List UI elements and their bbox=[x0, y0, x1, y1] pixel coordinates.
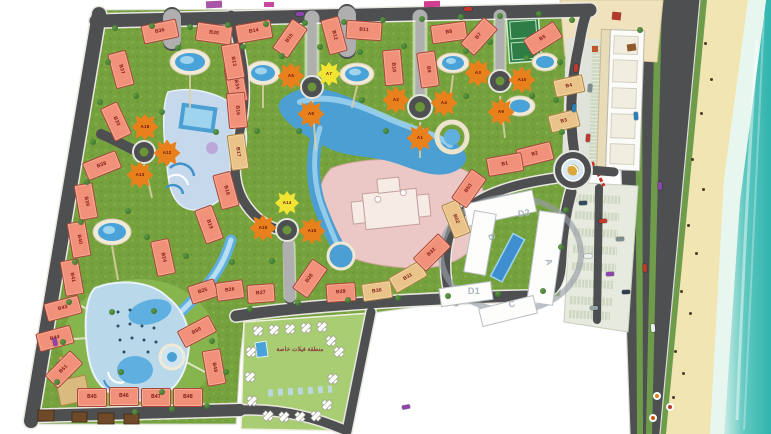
building-label: B28 bbox=[305, 273, 315, 284]
building-label: A12 bbox=[163, 151, 172, 156]
tree-icon bbox=[240, 44, 246, 50]
building-label: B40 bbox=[76, 234, 83, 245]
building-A14: A14 bbox=[275, 191, 299, 215]
tree-icon bbox=[90, 139, 96, 145]
building-B: B bbox=[480, 221, 503, 254]
building-B31: B31 bbox=[388, 260, 428, 294]
car-icon bbox=[590, 306, 598, 310]
building-label: B43 bbox=[58, 304, 69, 311]
tree-icon bbox=[132, 409, 138, 415]
building-label: A10 bbox=[518, 78, 527, 83]
car-icon bbox=[579, 201, 587, 205]
tree-icon bbox=[445, 293, 451, 299]
tree-icon bbox=[536, 11, 542, 17]
tree-icon bbox=[144, 234, 150, 240]
building-B32: B32 bbox=[413, 233, 452, 272]
building-label: B13 bbox=[230, 56, 237, 67]
building-markers-layer: B36B35B37B34B33B14B15B13B16B12B11B10B9B8… bbox=[0, 0, 771, 434]
building-label: B29 bbox=[336, 289, 346, 295]
car-icon bbox=[658, 182, 663, 190]
building-C: C bbox=[496, 294, 528, 314]
building-label: B32 bbox=[427, 247, 437, 257]
car-icon bbox=[52, 338, 57, 347]
beach-palm-icon bbox=[680, 290, 683, 293]
car-icon bbox=[584, 254, 592, 258]
building-B39: B39 bbox=[74, 182, 99, 221]
car-icon bbox=[586, 134, 591, 142]
building-label: B47 bbox=[151, 395, 161, 400]
building-B49: B49 bbox=[202, 348, 227, 387]
car-icon bbox=[296, 12, 304, 16]
villa bbox=[253, 326, 263, 336]
beach-palm-icon bbox=[695, 252, 698, 255]
building-B38: B38 bbox=[82, 149, 122, 180]
building-label: B16 bbox=[234, 105, 240, 115]
building-B10: B10 bbox=[382, 48, 404, 86]
car-icon bbox=[588, 84, 593, 92]
tree-icon bbox=[569, 17, 575, 23]
tree-icon bbox=[169, 406, 175, 412]
beach-palm-icon bbox=[710, 78, 713, 81]
tree-icon bbox=[341, 19, 347, 25]
tree-icon bbox=[109, 309, 115, 315]
tree-icon bbox=[112, 25, 118, 31]
building-label: B26 bbox=[225, 287, 235, 293]
tree-icon bbox=[213, 129, 219, 135]
tree-icon bbox=[458, 14, 464, 20]
tree-icon bbox=[159, 389, 165, 395]
tree-icon bbox=[133, 93, 139, 99]
building-A13: A13 bbox=[127, 162, 154, 189]
beach-palm-icon bbox=[704, 42, 707, 45]
tree-icon bbox=[72, 259, 78, 265]
beach-palm-icon bbox=[691, 158, 694, 161]
tree-icon bbox=[225, 22, 231, 28]
building-B19: B19 bbox=[194, 204, 224, 244]
building-label: B35 bbox=[209, 30, 219, 36]
building-label: B4 bbox=[565, 83, 573, 89]
tree-icon bbox=[463, 48, 469, 54]
tree-icon bbox=[187, 24, 193, 30]
building-A1: A1 bbox=[407, 125, 434, 152]
resort-master-plan-map: B36B35B37B34B33B14B15B13B16B12B11B10B9B8… bbox=[0, 0, 771, 434]
building-A7: A7 bbox=[317, 62, 341, 86]
tree-icon bbox=[223, 369, 229, 375]
tree-icon bbox=[540, 288, 546, 294]
tree-icon bbox=[395, 295, 401, 301]
building-A5: A5 bbox=[278, 63, 305, 90]
building-B47: B47 bbox=[141, 388, 171, 407]
villa bbox=[263, 411, 273, 421]
tree-icon bbox=[302, 20, 308, 26]
tree-icon bbox=[175, 45, 181, 51]
villa bbox=[317, 322, 327, 332]
tree-icon bbox=[183, 253, 189, 259]
building-label: A15 bbox=[308, 229, 317, 234]
building-B4: B4 bbox=[552, 74, 585, 98]
tree-icon bbox=[254, 128, 260, 134]
car-icon bbox=[616, 237, 624, 241]
beach-palm-icon bbox=[687, 224, 690, 227]
building-B5: B5 bbox=[523, 20, 564, 55]
building-label: B bbox=[487, 232, 498, 242]
beach-umbrella-icon bbox=[653, 392, 661, 400]
building-label: B7 bbox=[475, 32, 483, 40]
building-B34: B34 bbox=[224, 65, 249, 104]
tree-icon bbox=[401, 43, 407, 49]
tree-icon bbox=[524, 55, 530, 61]
building-label: B14 bbox=[249, 28, 260, 35]
car-icon bbox=[402, 404, 411, 409]
building-A8: A8 bbox=[298, 101, 325, 128]
building-A2: A2 bbox=[383, 87, 410, 114]
building-B17: B17 bbox=[227, 133, 250, 171]
building-label: B15 bbox=[285, 33, 295, 44]
building-A12: A12 bbox=[154, 140, 181, 167]
tree-icon bbox=[269, 258, 275, 264]
building-label: A8 bbox=[308, 112, 314, 117]
building-A9: A9 bbox=[488, 99, 515, 126]
villa bbox=[328, 374, 338, 384]
villa bbox=[311, 411, 321, 421]
building-B36: B36 bbox=[140, 18, 179, 44]
building-D1: D1 bbox=[459, 284, 489, 298]
car-icon bbox=[606, 272, 614, 276]
building-B46: B46 bbox=[109, 387, 139, 406]
building-label: B17 bbox=[235, 147, 241, 157]
building-A18: A18 bbox=[132, 114, 159, 141]
tree-icon bbox=[209, 338, 215, 344]
tree-icon bbox=[558, 244, 564, 250]
tree-icon bbox=[419, 16, 425, 22]
tree-icon bbox=[54, 379, 60, 385]
building-label: A14 bbox=[283, 201, 292, 206]
tree-icon bbox=[487, 39, 493, 45]
beach-palm-icon bbox=[700, 112, 703, 115]
building-label: B31 bbox=[403, 272, 414, 281]
car-icon bbox=[643, 264, 648, 272]
tree-icon bbox=[357, 49, 363, 55]
building-label: B52 bbox=[452, 214, 460, 225]
building-B48: B48 bbox=[173, 388, 203, 407]
building-label: C bbox=[508, 299, 517, 309]
villa bbox=[285, 324, 295, 334]
building-label: B5 bbox=[539, 34, 547, 42]
building-label: B34 bbox=[233, 79, 240, 90]
building-B37: B37 bbox=[107, 49, 135, 89]
car-icon bbox=[574, 64, 579, 72]
tree-icon bbox=[263, 21, 269, 27]
tree-icon bbox=[563, 207, 569, 213]
tree-icon bbox=[345, 297, 351, 303]
tree-icon bbox=[84, 179, 90, 185]
tree-icon bbox=[637, 27, 643, 33]
tree-icon bbox=[279, 53, 285, 59]
building-label: B50 bbox=[192, 326, 203, 335]
building-B43: B43 bbox=[43, 294, 83, 322]
villa bbox=[247, 396, 257, 406]
building-B26: B26 bbox=[215, 279, 245, 302]
beach-palm-icon bbox=[672, 396, 675, 399]
tree-icon bbox=[247, 306, 253, 312]
building-B30: B30 bbox=[361, 280, 393, 302]
tree-icon bbox=[359, 97, 365, 103]
building-B28: B28 bbox=[292, 258, 328, 298]
building-label: B53 bbox=[464, 183, 474, 194]
building-label: B46 bbox=[119, 394, 129, 399]
tree-icon bbox=[383, 128, 389, 134]
tree-icon bbox=[529, 93, 535, 99]
building-B29: B29 bbox=[325, 281, 356, 302]
building-B8: B8 bbox=[430, 20, 468, 44]
car-icon bbox=[572, 104, 577, 112]
tree-icon bbox=[559, 129, 565, 135]
building-label: A18 bbox=[141, 125, 150, 130]
building-label: B10 bbox=[390, 62, 396, 72]
building-B9: B9 bbox=[416, 50, 440, 88]
tree-icon bbox=[149, 23, 155, 29]
building-B51: B51 bbox=[45, 350, 84, 389]
building-label: D2 bbox=[517, 207, 531, 218]
building-label: B9 bbox=[425, 65, 431, 72]
car-icon bbox=[464, 7, 472, 11]
tree-icon bbox=[495, 291, 501, 297]
tree-icon bbox=[118, 369, 124, 375]
building-label: B38 bbox=[97, 161, 108, 169]
beach-palm-icon bbox=[674, 350, 677, 353]
villa bbox=[269, 325, 279, 335]
tree-icon bbox=[380, 17, 386, 23]
building-label: A5 bbox=[288, 74, 294, 79]
building-label: B49 bbox=[211, 362, 218, 373]
building-B1: B1 bbox=[486, 152, 525, 177]
building-label: B36 bbox=[155, 28, 166, 35]
building-B11: B11 bbox=[345, 19, 382, 40]
building-B53: B53 bbox=[451, 168, 487, 208]
tree-icon bbox=[125, 208, 131, 214]
building-label: A3 bbox=[475, 71, 481, 76]
tree-icon bbox=[159, 109, 165, 115]
building-label: B12 bbox=[330, 30, 337, 41]
villa bbox=[322, 400, 332, 410]
villas-zone-label: منطقة فيلات خاصة bbox=[262, 346, 338, 353]
car-icon bbox=[651, 324, 656, 332]
building-label: B27 bbox=[256, 290, 266, 296]
building-B24: B24 bbox=[150, 237, 176, 276]
building-label: B19 bbox=[205, 219, 213, 230]
villa bbox=[245, 372, 255, 382]
building-B16: B16 bbox=[226, 91, 248, 129]
building-A15: A15 bbox=[299, 218, 326, 245]
beach-palm-icon bbox=[682, 372, 685, 375]
building-A10: A10 bbox=[509, 67, 536, 94]
building-label: B2 bbox=[531, 151, 539, 157]
tree-icon bbox=[66, 299, 72, 305]
tree-icon bbox=[78, 219, 84, 225]
villa bbox=[279, 412, 289, 422]
villa bbox=[301, 323, 311, 333]
tree-icon bbox=[295, 300, 301, 306]
tree-icon bbox=[557, 59, 563, 65]
building-A3: A3 bbox=[465, 60, 492, 87]
building-label: B45 bbox=[87, 395, 97, 400]
building-label: D1 bbox=[468, 287, 480, 296]
tree-icon bbox=[97, 99, 103, 105]
building-label: B30 bbox=[372, 288, 382, 294]
villa bbox=[326, 336, 336, 346]
building-A: A bbox=[538, 246, 559, 279]
building-label: A9 bbox=[498, 110, 504, 115]
tree-icon bbox=[317, 44, 323, 50]
building-label: B25 bbox=[198, 287, 209, 295]
building-label: B39 bbox=[83, 196, 90, 207]
building-label: A13 bbox=[136, 173, 145, 178]
villa bbox=[295, 412, 305, 422]
building-label: A2 bbox=[393, 98, 399, 103]
building-label: B8 bbox=[445, 29, 452, 35]
building-B33: B33 bbox=[100, 101, 132, 142]
tree-icon bbox=[60, 339, 66, 345]
tree-icon bbox=[105, 59, 111, 65]
building-B25: B25 bbox=[187, 278, 220, 305]
beach-palm-icon bbox=[702, 188, 705, 191]
building-label: B37 bbox=[117, 64, 124, 75]
building-label: A7 bbox=[326, 72, 332, 77]
building-B18: B18 bbox=[212, 170, 240, 210]
building-label: B51 bbox=[59, 364, 69, 374]
building-B52: B52 bbox=[441, 199, 471, 239]
building-label: A1 bbox=[417, 136, 423, 141]
building-A16: A16 bbox=[250, 215, 277, 242]
tree-icon bbox=[463, 93, 469, 99]
beach-umbrella-icon bbox=[666, 403, 674, 411]
building-label: A16 bbox=[259, 226, 268, 231]
building-label: B1 bbox=[501, 161, 509, 167]
building-B40: B40 bbox=[67, 220, 92, 259]
tree-icon bbox=[497, 13, 503, 19]
building-B45: B45 bbox=[77, 388, 107, 407]
building-label: B18 bbox=[222, 185, 229, 196]
tree-icon bbox=[296, 128, 302, 134]
tree-icon bbox=[151, 308, 157, 314]
building-label: B41 bbox=[69, 272, 76, 283]
tree-icon bbox=[553, 97, 559, 103]
beach-palm-icon bbox=[689, 312, 692, 315]
tree-icon bbox=[204, 403, 210, 409]
building-label: A bbox=[544, 257, 554, 266]
car-icon bbox=[599, 219, 607, 223]
car-icon bbox=[622, 290, 630, 294]
building-label: A4 bbox=[441, 101, 447, 106]
car-icon bbox=[634, 112, 639, 120]
building-B2: B2 bbox=[515, 140, 555, 167]
building-B27: B27 bbox=[246, 283, 275, 304]
building-A4: A4 bbox=[431, 90, 458, 117]
building-label: B48 bbox=[183, 395, 193, 400]
building-label: B24 bbox=[160, 252, 167, 263]
building-label: B33 bbox=[112, 116, 121, 127]
tree-icon bbox=[229, 259, 235, 265]
building-D2: D2 bbox=[508, 204, 540, 223]
building-label: B11 bbox=[359, 27, 369, 33]
beach-umbrella-icon bbox=[649, 414, 657, 422]
villa bbox=[246, 347, 256, 357]
building-label: B3 bbox=[560, 118, 568, 124]
